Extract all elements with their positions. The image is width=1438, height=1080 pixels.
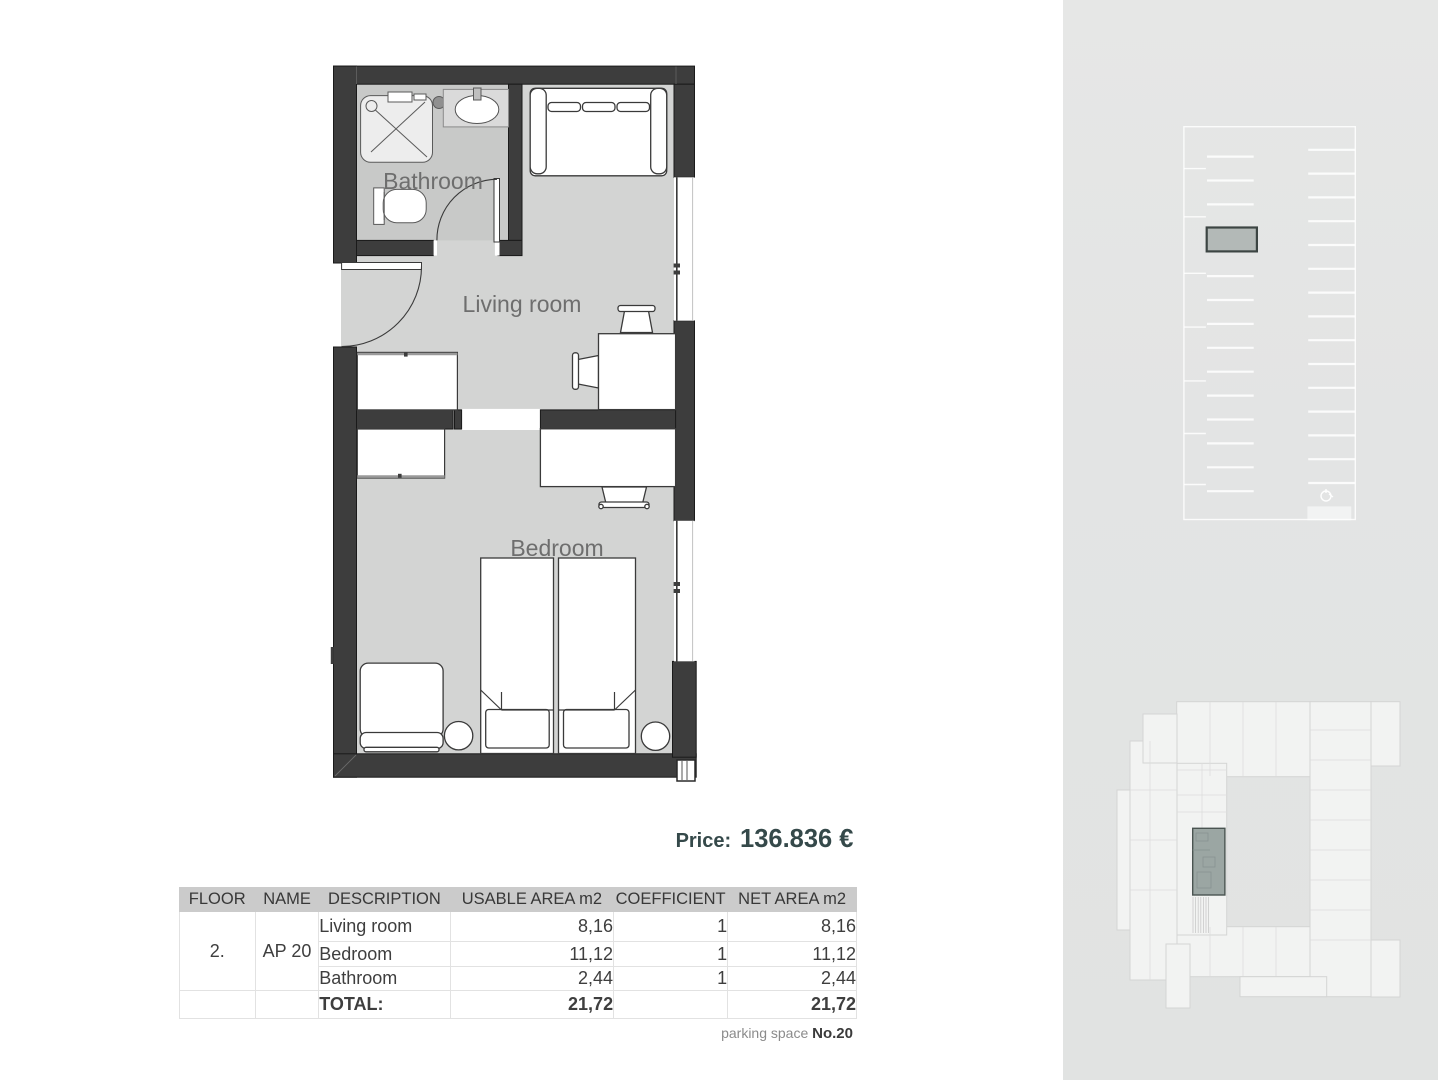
svg-text:Bathroom: Bathroom: [383, 168, 483, 194]
svg-text:Living room: Living room: [463, 291, 582, 317]
svg-text:Bedroom: Bedroom: [510, 535, 603, 561]
